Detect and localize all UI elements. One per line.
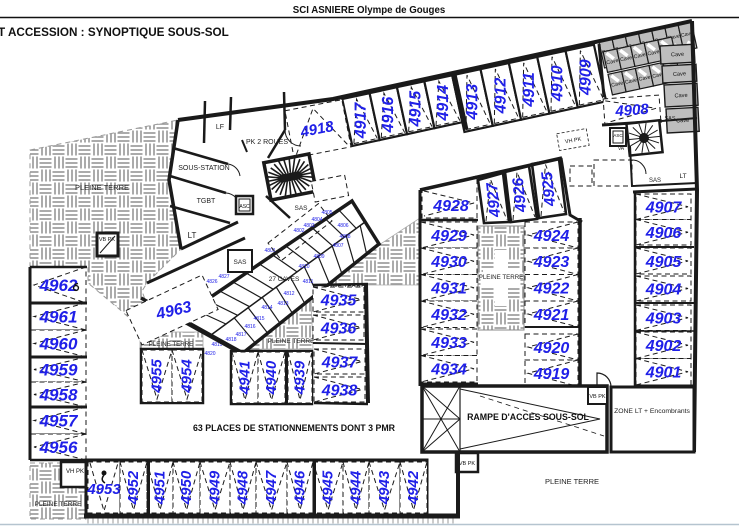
svg-text:4815: 4815: [253, 316, 264, 322]
svg-text:4946: 4946: [292, 470, 309, 505]
svg-text:SOUS-STATION: SOUS-STATION: [178, 165, 229, 172]
svg-text:4936: 4936: [320, 320, 357, 337]
svg-text:4816: 4816: [244, 324, 255, 330]
svg-text:4814: 4814: [261, 305, 272, 311]
svg-text:4826: 4826: [206, 279, 217, 285]
svg-text:4929: 4929: [430, 228, 467, 245]
svg-text:4949: 4949: [207, 470, 224, 505]
svg-text:4937: 4937: [321, 354, 359, 371]
svg-text:PLEINE TERRE: PLEINE TERRE: [35, 501, 83, 508]
svg-text:Cave: Cave: [673, 71, 686, 78]
svg-text:4934: 4934: [430, 362, 467, 379]
svg-text:4820: 4820: [204, 351, 215, 357]
svg-text:4906: 4906: [645, 225, 682, 242]
svg-text:4912: 4912: [493, 78, 510, 115]
svg-text:4948: 4948: [235, 470, 252, 505]
svg-text:VA: VA: [618, 146, 625, 152]
svg-text:SAS: SAS: [294, 205, 308, 212]
svg-text:PLEINE TERRE: PLEINE TERRE: [268, 338, 316, 345]
svg-text:4930: 4930: [430, 254, 467, 271]
svg-text:4809: 4809: [313, 254, 324, 260]
svg-text:27 CAVES: 27 CAVES: [269, 276, 300, 283]
svg-text:VB PK: VB PK: [99, 237, 116, 243]
svg-text:4810: 4810: [298, 264, 309, 270]
svg-text:PLEINE TERRE: PLEINE TERRE: [479, 274, 524, 281]
svg-text:4911: 4911: [521, 72, 538, 108]
svg-text:4807: 4807: [332, 243, 343, 249]
svg-text:Cave: Cave: [674, 93, 687, 100]
svg-text:ASC: ASC: [613, 133, 623, 138]
svg-text:4813: 4813: [277, 301, 288, 307]
svg-text:4928: 4928: [432, 198, 469, 215]
svg-text:4808: 4808: [339, 234, 350, 240]
svg-text:4902: 4902: [645, 338, 682, 355]
svg-text:RAMPE D'ACCES SOUS-SOL: RAMPE D'ACCES SOUS-SOL: [467, 412, 589, 422]
svg-text:4827: 4827: [218, 274, 229, 280]
svg-text:VB PK: VB PK: [589, 394, 606, 400]
svg-text:SAS: SAS: [233, 259, 247, 266]
svg-text:4951: 4951: [152, 471, 169, 505]
svg-text:4817: 4817: [235, 332, 246, 338]
svg-text:4944: 4944: [348, 470, 365, 505]
svg-text:4950: 4950: [178, 470, 195, 505]
svg-text:4952: 4952: [125, 470, 142, 505]
svg-text:4811: 4811: [303, 279, 314, 285]
svg-text:4806: 4806: [337, 223, 348, 229]
svg-text:4942: 4942: [405, 470, 422, 505]
svg-text:VB PK: VB PK: [459, 461, 476, 467]
svg-text:4804: 4804: [311, 217, 322, 223]
svg-text:4938: 4938: [321, 382, 358, 399]
svg-text:4909: 4909: [578, 59, 595, 96]
svg-text:4803: 4803: [303, 223, 314, 229]
svg-text:4941: 4941: [237, 361, 254, 395]
svg-text:4907: 4907: [645, 200, 683, 217]
svg-text:4932: 4932: [430, 307, 467, 324]
svg-text:63 PLACES DE STATIONNEMENTS DO: 63 PLACES DE STATIONNEMENTS DONT 3 PMR: [193, 423, 396, 433]
svg-text:4955: 4955: [149, 359, 166, 394]
svg-text:LT: LT: [679, 173, 686, 180]
svg-text:4910: 4910: [549, 65, 566, 102]
svg-text:4914: 4914: [435, 85, 452, 122]
svg-text:SCI ASNIERE Olympe de Gouges: SCI ASNIERE Olympe de Gouges: [293, 5, 446, 16]
svg-text:4915: 4915: [407, 90, 424, 128]
svg-text:4905: 4905: [645, 254, 683, 271]
svg-text:4812: 4812: [283, 291, 294, 297]
svg-text:4959: 4959: [39, 361, 78, 380]
svg-text:4957: 4957: [39, 412, 79, 431]
svg-text:4818: 4818: [225, 337, 236, 343]
svg-text:PLEINE TERRE: PLEINE TERRE: [149, 341, 194, 348]
svg-text:4943: 4943: [376, 470, 393, 505]
svg-text:4947: 4947: [263, 470, 280, 505]
svg-text:LF: LF: [216, 124, 224, 131]
svg-text:4961: 4961: [39, 308, 78, 327]
svg-text:4920: 4920: [533, 340, 570, 357]
svg-text:PLEINE TERRE: PLEINE TERRE: [545, 477, 599, 486]
svg-text:4924: 4924: [533, 228, 570, 245]
svg-text:VH PK: VH PK: [66, 469, 84, 475]
svg-text:4940: 4940: [263, 360, 280, 395]
svg-text:LT: LT: [188, 231, 197, 240]
svg-text:4917: 4917: [353, 102, 370, 140]
svg-text:4904: 4904: [645, 281, 682, 298]
svg-text:TGBT: TGBT: [197, 198, 216, 205]
svg-text:4903: 4903: [645, 311, 682, 328]
svg-text:4922: 4922: [533, 281, 570, 298]
svg-text:4919: 4919: [533, 366, 570, 383]
svg-text:4901: 4901: [645, 365, 682, 382]
svg-text:4939: 4939: [292, 360, 309, 395]
svg-text:4913: 4913: [464, 84, 481, 121]
svg-text:4931: 4931: [430, 281, 467, 298]
svg-text:4956: 4956: [39, 438, 78, 457]
svg-text:PK 2 ROUES: PK 2 ROUES: [246, 139, 288, 146]
svg-text:4945: 4945: [320, 470, 337, 505]
svg-text:4921: 4921: [533, 307, 570, 324]
svg-text:4916: 4916: [380, 97, 397, 134]
svg-text:4962: 4962: [39, 276, 78, 295]
svg-text:4958: 4958: [39, 386, 78, 405]
svg-text:T ACCESSION : SYNOPTIQUE SOUS-: T ACCESSION : SYNOPTIQUE SOUS-SOL: [0, 26, 229, 39]
svg-text:SAS: SAS: [649, 178, 661, 184]
svg-text:ASC: ASC: [239, 204, 250, 210]
svg-text:PLEINE TERRE: PLEINE TERRE: [75, 183, 129, 192]
svg-text:Cave: Cave: [671, 52, 684, 59]
svg-text:ZONE LT + Encombrants: ZONE LT + Encombrants: [614, 408, 690, 415]
svg-text:4923: 4923: [533, 254, 570, 271]
svg-text:4933: 4933: [430, 335, 467, 352]
svg-text:4954: 4954: [179, 359, 196, 394]
svg-text:4908: 4908: [614, 101, 650, 120]
svg-text:4935: 4935: [320, 292, 358, 309]
svg-text:4960: 4960: [39, 335, 78, 354]
svg-text:4953: 4953: [86, 481, 121, 498]
